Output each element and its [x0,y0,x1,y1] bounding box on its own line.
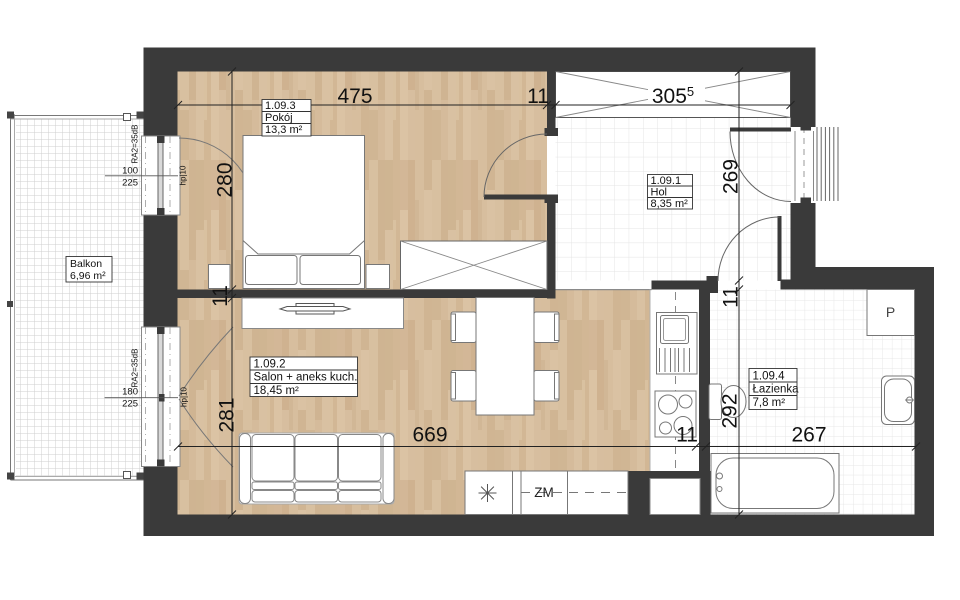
svg-text:7,8 m²: 7,8 m² [753,397,786,409]
svg-text:6,96 m²: 6,96 m² [70,270,106,282]
svg-text:11: 11 [720,286,743,308]
svg-text:P: P [886,304,895,320]
svg-text:hp|10: hp|10 [179,165,188,185]
svg-text:13,3 m²: 13,3 m² [265,124,303,136]
svg-text:8,35 m²: 8,35 m² [651,198,689,210]
svg-text:225: 225 [122,399,138,410]
svg-text:1.09.1: 1.09.1 [651,175,682,187]
svg-text:Balkon: Balkon [70,258,102,270]
svg-text:RA2=35dB: RA2=35dB [131,349,140,388]
svg-text:225: 225 [122,178,138,189]
svg-text:11: 11 [527,85,549,108]
svg-text:Salon + aneks kuch.: Salon + aneks kuch. [254,372,358,384]
svg-text:280: 280 [214,162,237,197]
svg-text:hp|10: hp|10 [180,387,189,407]
svg-text:18,45 m²: 18,45 m² [254,385,300,397]
svg-text:669: 669 [412,424,447,447]
svg-text:11: 11 [676,424,698,447]
svg-text:1.09.4: 1.09.4 [753,371,786,383]
svg-text:RA2=35dB: RA2=35dB [131,125,140,164]
svg-text:Hol: Hol [651,187,668,199]
svg-text:Pokój: Pokój [265,112,293,124]
svg-text:100: 100 [122,166,138,177]
svg-text:1.09.3: 1.09.3 [265,100,296,112]
svg-text:ZM: ZM [534,485,554,500]
svg-text:267: 267 [791,424,826,447]
svg-text:269: 269 [720,159,743,194]
svg-text:475: 475 [337,85,372,108]
svg-text:1.09.2: 1.09.2 [254,359,286,371]
svg-text:292: 292 [719,393,742,428]
svg-text:Łazienka: Łazienka [753,384,800,396]
svg-text:11: 11 [209,285,232,307]
svg-text:281: 281 [216,397,239,432]
